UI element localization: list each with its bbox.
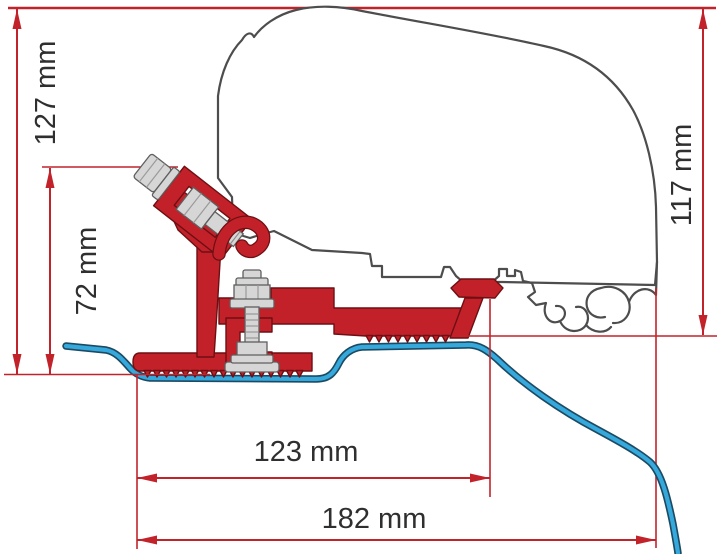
arrow-182-right (636, 536, 656, 545)
dimension-label-127: 127 mm (30, 41, 62, 146)
bolt-shaft (245, 307, 259, 347)
vehicle-body-outline (218, 7, 657, 332)
arrow-182-left (137, 536, 157, 545)
technical-diagram-canvas (0, 0, 720, 554)
bolt-washer-bottom (231, 355, 273, 363)
strut-rail-cap (451, 279, 503, 298)
arrow-123-right (470, 474, 490, 483)
dimension-label-72: 72 mm (71, 227, 103, 316)
dimension-label-117: 117 mm (666, 124, 698, 227)
arrow-117-down (699, 315, 708, 335)
arrow-72-down (46, 354, 55, 374)
arrow-117-up (699, 9, 708, 29)
bracket-base-plate (133, 353, 312, 371)
bracket-spine (197, 246, 221, 357)
arrow-123-left (137, 474, 157, 483)
arrow-72-up (46, 168, 55, 188)
arrow-127-down (13, 354, 22, 374)
bracket-hook (219, 222, 264, 254)
arm-teeth (366, 336, 449, 343)
arrow-127-up (13, 9, 22, 29)
dimension-label-123: 123 mm (254, 436, 359, 468)
diagram-page: 127 mm 72 mm 117 mm 123 mm 182 mm (0, 0, 720, 554)
dimension-label-182: 182 mm (322, 503, 427, 535)
